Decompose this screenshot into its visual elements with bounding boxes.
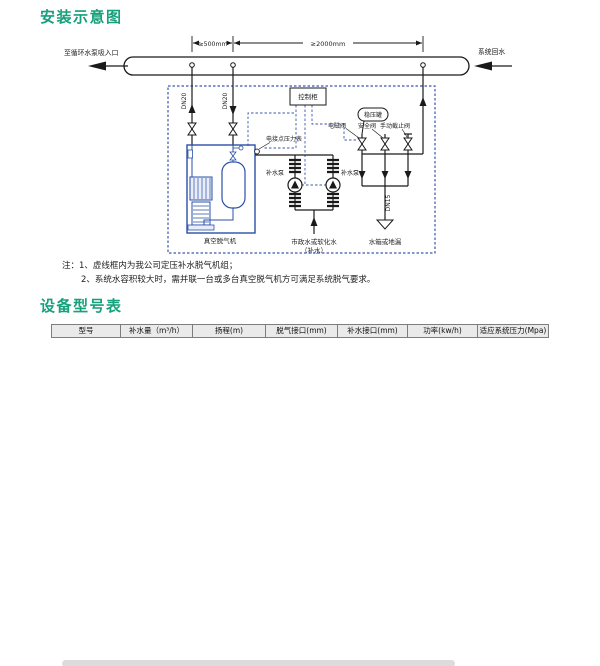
column-header: 功率(kw/h) (408, 325, 478, 338)
note-line-1: 注：1、虚线框内为我公司定压补水脱气机组； (62, 260, 375, 274)
sensor-small (188, 150, 193, 158)
flow-arrow-up (311, 217, 318, 226)
solenoid-valve-label: 电磁阀 (328, 122, 346, 130)
dn15-label: DN15 (385, 194, 392, 211)
valve-icon (229, 123, 237, 135)
flow-arrow-up (420, 97, 427, 106)
contact-pressure-gauge-icon (255, 149, 260, 154)
column-header: 补水接口(mm) (338, 325, 408, 338)
dn20-label: DN20 (222, 92, 229, 109)
tank-gauge-icon (239, 146, 243, 150)
pump-stages (192, 202, 210, 225)
note-line-2: 2、系统水容积较大时，需并联一台或多台真空脱气机方可满足系统脱气要求。 (81, 274, 375, 288)
flow-arrow-up (189, 104, 196, 113)
flow-arrow-down (359, 171, 366, 179)
dim-500-label: ≥500mm (198, 41, 227, 48)
dim-arrow (416, 41, 422, 46)
flow-arrow-down (230, 106, 237, 115)
models-table-head: 型号补水量（m³/h）扬程(m)脱气接口(mm)补水接口(mm)功率(kw/h)… (52, 325, 549, 338)
drain-funnel-icon (377, 220, 393, 229)
makeup-pump-label: 补水泵 (266, 169, 284, 177)
solenoid-valve-icon (358, 138, 366, 150)
tank-valve-icon (230, 152, 236, 160)
pump-base (188, 225, 214, 230)
dim-arrow (234, 41, 240, 46)
stabilizer-tank-label: 稳压罐 (364, 111, 382, 119)
degasser-tank (222, 162, 245, 208)
city-water-label2: （补水） (301, 246, 327, 255)
manual-stop-valve-icon (404, 138, 412, 150)
column-header: 型号 (52, 325, 121, 338)
safety-valve-label: 安全阀 (358, 122, 376, 130)
label-leader (402, 129, 407, 137)
pipe-tap (190, 63, 195, 68)
pipe-right-label: 系统回水 (478, 47, 505, 56)
safety-valve-icon (381, 138, 389, 150)
column-header: 补水量（m³/h） (121, 325, 193, 338)
control-cabinet-label: 控制柜 (298, 92, 318, 101)
installation-diagram: ≥500mm ≥2000mm 至循环水泵吸入口 系统回水 (0, 28, 600, 262)
pipe-left-label: 至循环水泵吸入口 (64, 48, 118, 57)
flow-arrow-left (88, 62, 106, 71)
models-table: 型号补水量（m³/h）扬程(m)脱气接口(mm)补水接口(mm)功率(kw/h)… (51, 324, 549, 338)
pipe-tap (421, 63, 426, 68)
install-diagram-title: 安装示意图 (40, 6, 123, 27)
city-water-label: 市政水或软化水 (291, 237, 337, 246)
pressure-gauge-label: 电接点压力表 (266, 135, 302, 143)
flow-arrow-down (382, 171, 389, 179)
valve-assembly-pipes (362, 134, 423, 220)
column-header: 脱气接口(mm) (266, 325, 338, 338)
column-header: 适应系统压力(Mpa) (478, 325, 549, 338)
degasser-label: 真空脱气机 (204, 236, 237, 245)
document-page: 安装示意图 ≥500mm ≥2000mm 至循环水泵吸入口 (0, 0, 600, 666)
degasser-unit (187, 145, 255, 233)
column-header: 扬程(m) (193, 325, 266, 338)
valve-icon (188, 123, 196, 135)
flow-arrow-down (405, 171, 412, 179)
tank-or-drain-label: 水箱或地漏 (369, 237, 402, 246)
manual-stop-valve-label: 手动截止阀 (380, 122, 410, 130)
dn20-label: DN20 (181, 92, 188, 109)
dim-2000-label: ≥2000mm (311, 40, 346, 48)
control-wiring (248, 105, 356, 185)
pipe-tap (231, 63, 236, 68)
footer-bar (62, 660, 455, 666)
main-pipe (124, 57, 469, 75)
flow-arrow-right (474, 62, 492, 71)
riser-pipes (192, 67, 423, 154)
label-leader (372, 129, 383, 138)
pump-motor (190, 177, 212, 200)
models-table-title: 设备型号表 (40, 295, 123, 316)
notes: 注：1、虚线框内为我公司定压补水脱气机组； 2、系统水容积较大时，需并联一台或多… (62, 260, 375, 287)
makeup-pump-label: 补水泵 (341, 169, 359, 177)
